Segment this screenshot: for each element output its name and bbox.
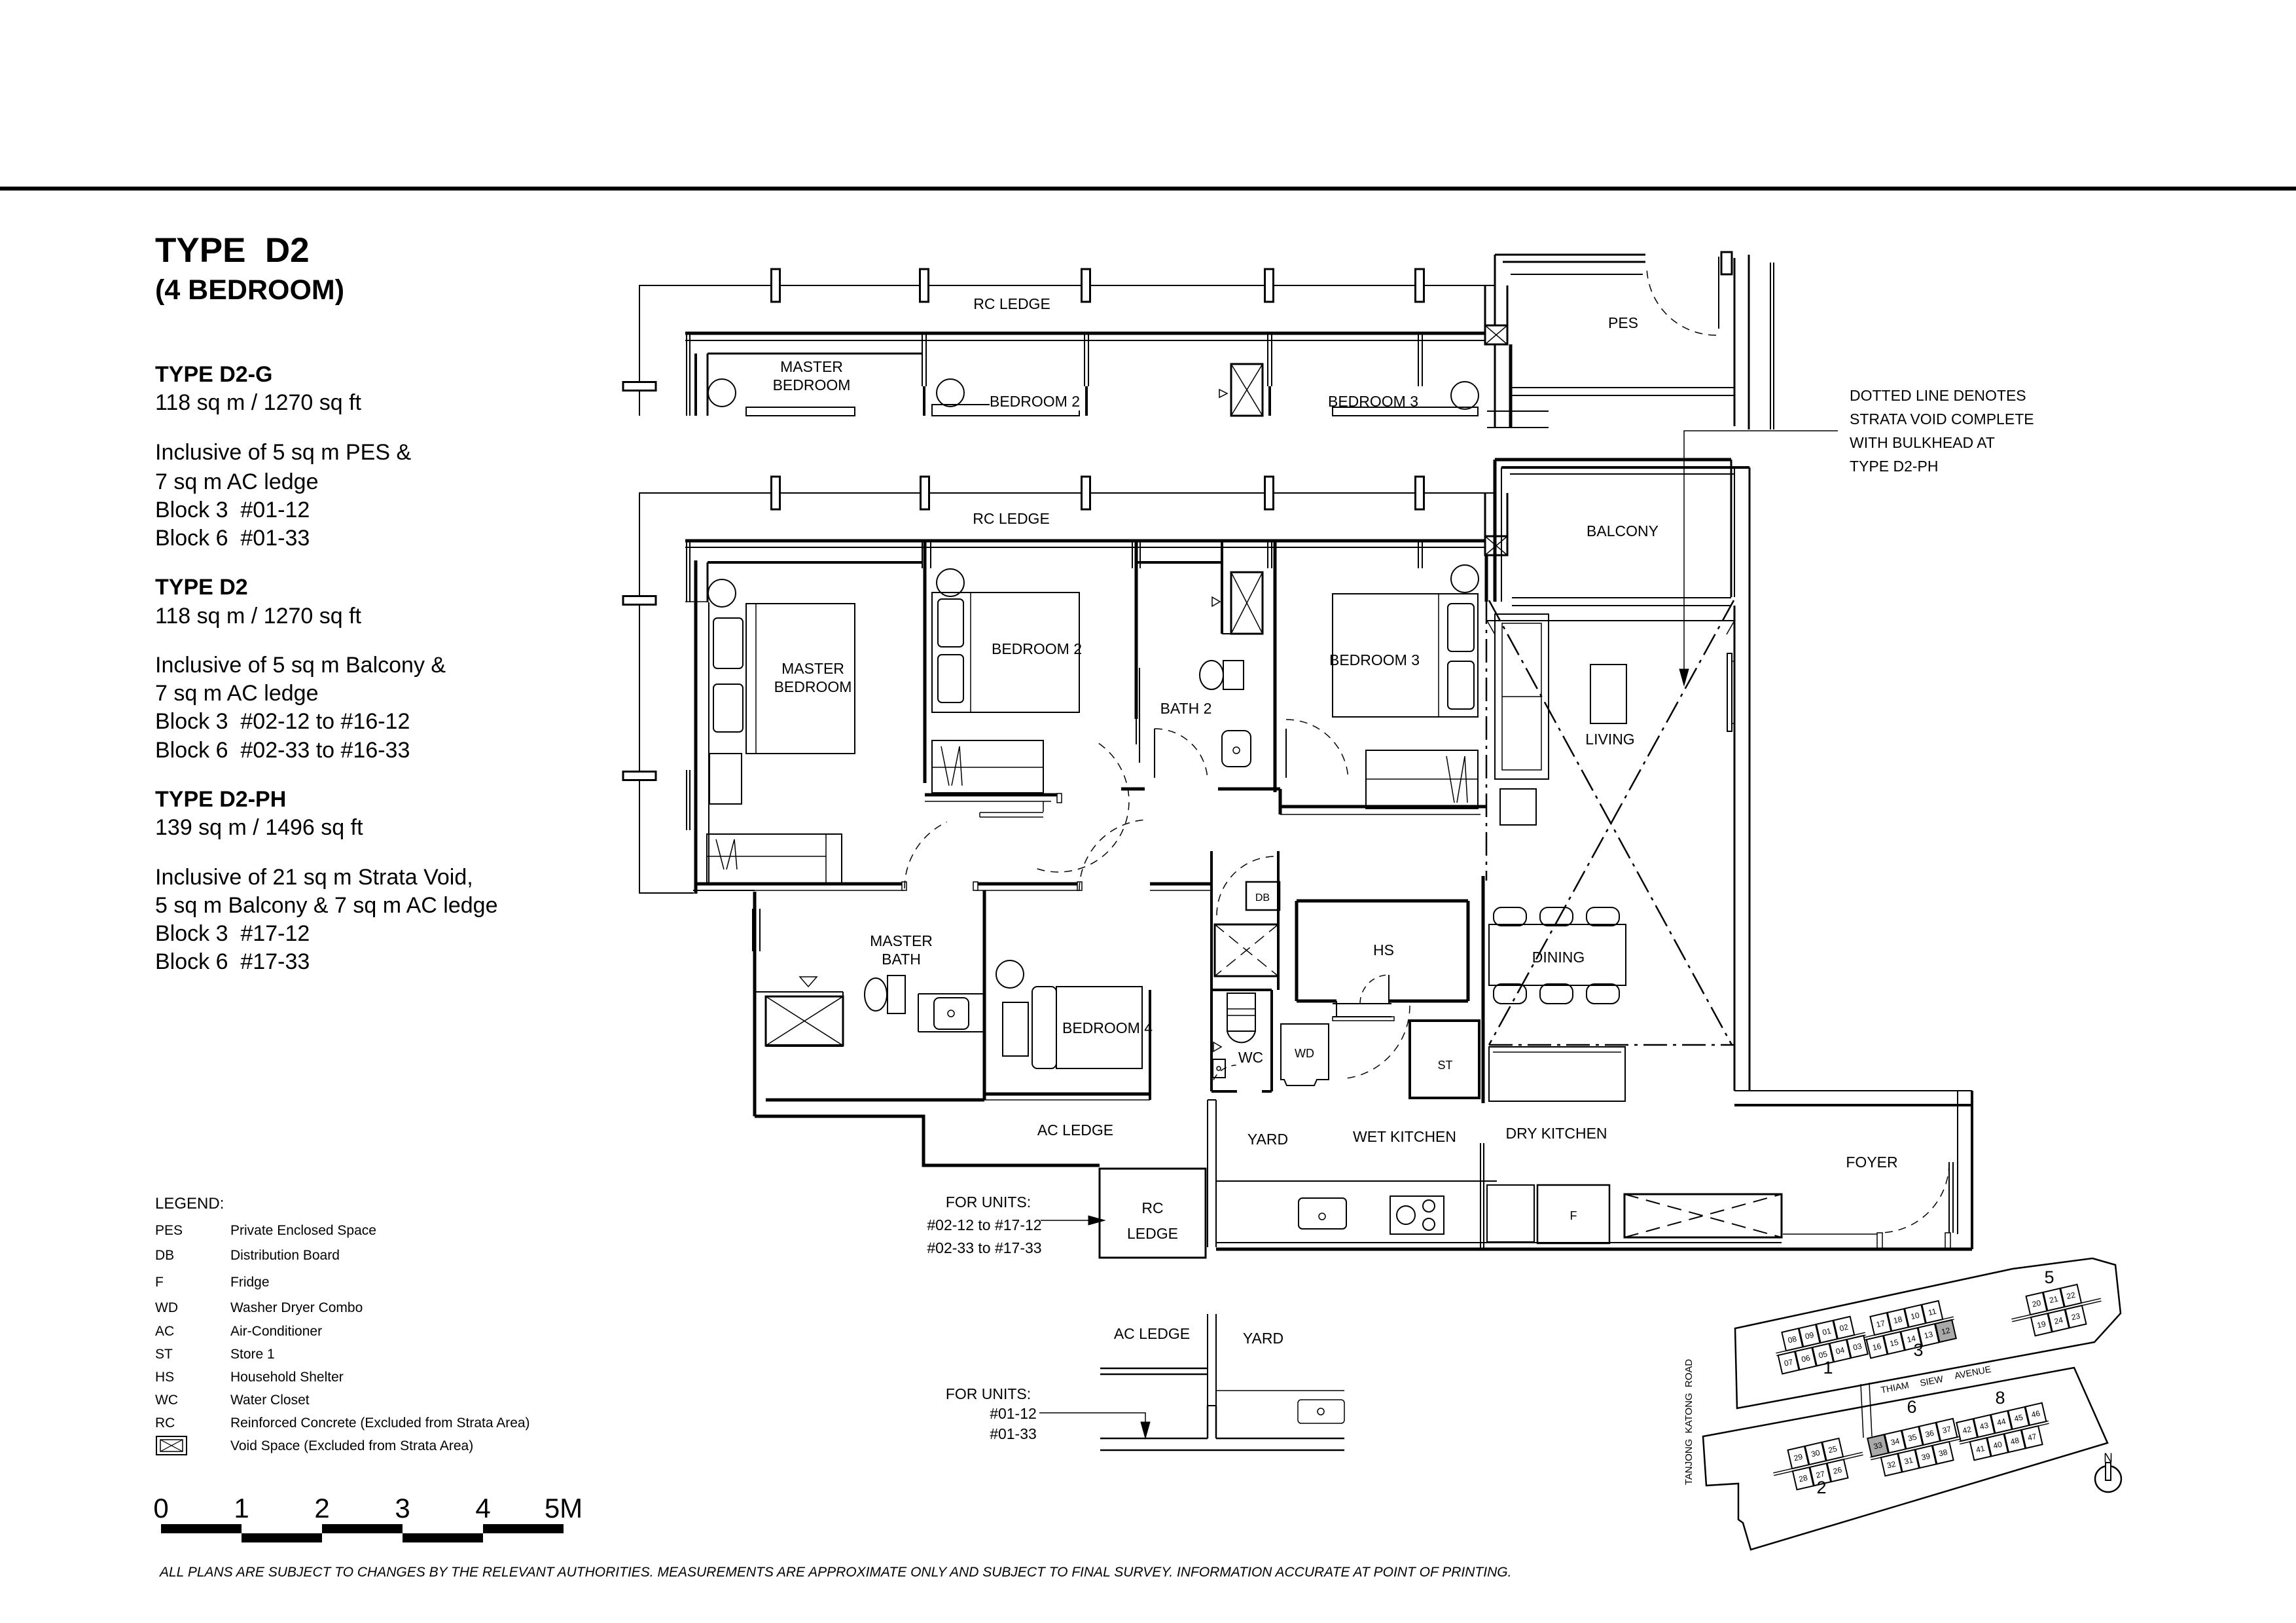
svg-text:BEDROOM: BEDROOM xyxy=(774,678,852,695)
svg-text:5 sq m Balcony & 7 sq m AC led: 5 sq m Balcony & 7 sq m AC ledge xyxy=(155,893,497,918)
svg-text:FOR UNITS:: FOR UNITS: xyxy=(946,1385,1031,1402)
svg-text:BEDROOM 4: BEDROOM 4 xyxy=(1062,1019,1153,1036)
svg-text:HS: HS xyxy=(1373,941,1394,958)
svg-text:Private Enclosed Space: Private Enclosed Space xyxy=(230,1223,376,1238)
svg-text:Washer Dryer Combo: Washer Dryer Combo xyxy=(230,1300,363,1315)
svg-text:0: 0 xyxy=(153,1493,168,1523)
svg-text:Household Shelter: Household Shelter xyxy=(230,1370,344,1385)
svg-text:LEDGE: LEDGE xyxy=(1127,1225,1178,1242)
svg-text:139 sq m / 1496 sq ft: 139 sq m / 1496 sq ft xyxy=(155,815,363,840)
svg-text:TANJONG KATONG ROAD: TANJONG KATONG ROAD xyxy=(1683,1359,1695,1486)
svg-text:7 sq m AC ledge: 7 sq m AC ledge xyxy=(155,469,318,494)
svg-text:DRY KITCHEN: DRY KITCHEN xyxy=(1505,1125,1607,1142)
svg-text:1: 1 xyxy=(234,1493,249,1523)
svg-text:WD: WD xyxy=(1295,1047,1314,1060)
svg-text:DB: DB xyxy=(155,1248,174,1263)
svg-text:DINING: DINING xyxy=(1532,949,1585,966)
svg-text:(4 BEDROOM): (4 BEDROOM) xyxy=(155,274,344,306)
svg-text:MASTER: MASTER xyxy=(780,358,843,375)
svg-text:1: 1 xyxy=(1823,1358,1833,1377)
svg-text:#01-33: #01-33 xyxy=(990,1425,1037,1442)
svg-text:Block 6 #01-33: Block 6 #01-33 xyxy=(155,526,310,551)
svg-text:LEGEND:: LEGEND: xyxy=(155,1195,224,1213)
svg-text:WET KITCHEN: WET KITCHEN xyxy=(1353,1128,1456,1145)
svg-text:ALL PLANS ARE SUBJECT TO CHANG: ALL PLANS ARE SUBJECT TO CHANGES BY THE … xyxy=(158,1565,1511,1580)
svg-text:Block 6 #02-33 to #16-33: Block 6 #02-33 to #16-33 xyxy=(155,738,410,763)
svg-text:TYPE D2-PH: TYPE D2-PH xyxy=(155,787,286,812)
svg-text:ST: ST xyxy=(155,1347,173,1362)
svg-text:Block 6 #17-33: Block 6 #17-33 xyxy=(155,949,310,974)
svg-text:Distribution Board: Distribution Board xyxy=(230,1248,340,1263)
svg-text:AC LEDGE: AC LEDGE xyxy=(1114,1325,1190,1342)
svg-text:4: 4 xyxy=(475,1493,490,1523)
svg-text:Inclusive of 5 sq m Balcony &: Inclusive of 5 sq m Balcony & xyxy=(155,653,446,678)
svg-text:LIVING: LIVING xyxy=(1585,731,1634,748)
svg-text:TYPE D2-PH: TYPE D2-PH xyxy=(1850,458,1938,475)
svg-text:118 sq m / 1270 sq ft: 118 sq m / 1270 sq ft xyxy=(155,390,362,415)
svg-text:Fridge: Fridge xyxy=(230,1275,270,1290)
svg-text:TYPE D2: TYPE D2 xyxy=(155,575,248,600)
svg-text:WC: WC xyxy=(155,1393,178,1408)
svg-text:FOYER: FOYER xyxy=(1846,1154,1897,1171)
svg-text:BEDROOM: BEDROOM xyxy=(773,376,851,393)
svg-text:BATH: BATH xyxy=(882,951,921,968)
svg-text:Block 3 #17-12: Block 3 #17-12 xyxy=(155,921,310,946)
svg-text:2: 2 xyxy=(314,1493,329,1523)
svg-text:STRATA VOID COMPLETE: STRATA VOID COMPLETE xyxy=(1850,410,2034,428)
svg-text:RC: RC xyxy=(155,1415,175,1431)
svg-text:Air-Conditioner: Air-Conditioner xyxy=(230,1324,322,1339)
svg-text:Void Space (Excluded from Stra: Void Space (Excluded from Strata Area) xyxy=(230,1438,473,1453)
svg-text:MASTER: MASTER xyxy=(781,660,844,677)
svg-text:F: F xyxy=(1570,1209,1577,1222)
svg-text:Inclusive of 5 sq m PES &: Inclusive of 5 sq m PES & xyxy=(155,440,411,465)
svg-text:AC LEDGE: AC LEDGE xyxy=(1037,1122,1113,1139)
svg-text:YARD: YARD xyxy=(1247,1131,1288,1148)
svg-text:FOR UNITS:: FOR UNITS: xyxy=(946,1194,1031,1211)
svg-text:DOTTED LINE DENOTES: DOTTED LINE DENOTES xyxy=(1850,387,2026,404)
svg-text:Water Closet: Water Closet xyxy=(230,1393,310,1408)
svg-text:RC: RC xyxy=(1141,1199,1163,1216)
svg-text:118 sq m / 1270 sq ft: 118 sq m / 1270 sq ft xyxy=(155,604,362,629)
svg-text:PES: PES xyxy=(155,1223,183,1238)
svg-text:3: 3 xyxy=(1913,1340,1923,1360)
svg-text:TYPE D2-G: TYPE D2-G xyxy=(155,362,272,387)
svg-text:#02-12 to #17-12: #02-12 to #17-12 xyxy=(927,1216,1041,1233)
svg-text:TYPE D2: TYPE D2 xyxy=(155,231,310,270)
svg-text:MASTER: MASTER xyxy=(870,932,933,949)
svg-text:2: 2 xyxy=(1816,1478,1826,1497)
svg-text:DB: DB xyxy=(1255,892,1270,903)
svg-text:3: 3 xyxy=(395,1493,410,1523)
svg-text:Block 3 #02-12 to #16-12: Block 3 #02-12 to #16-12 xyxy=(155,709,410,734)
svg-text:BATH 2: BATH 2 xyxy=(1160,700,1212,717)
svg-text:6: 6 xyxy=(1907,1397,1916,1417)
svg-text:Reinforced Concrete (Excluded: Reinforced Concrete (Excluded from Strat… xyxy=(230,1415,530,1431)
svg-text:WC: WC xyxy=(1238,1049,1263,1066)
svg-text:8: 8 xyxy=(1995,1388,2005,1408)
svg-text:Inclusive of 21 sq m Strata Vo: Inclusive of 21 sq m Strata Void, xyxy=(155,865,473,890)
svg-text:F: F xyxy=(155,1275,164,1290)
svg-text:WD: WD xyxy=(155,1300,178,1315)
svg-text:YARD: YARD xyxy=(1243,1330,1283,1347)
svg-text:RC LEDGE: RC LEDGE xyxy=(973,295,1050,312)
svg-text:AC: AC xyxy=(155,1324,174,1339)
svg-text:Store 1: Store 1 xyxy=(230,1347,275,1362)
svg-text:ST: ST xyxy=(1437,1059,1452,1072)
svg-text:BEDROOM 2: BEDROOM 2 xyxy=(992,640,1082,657)
svg-text:N: N xyxy=(2104,1451,2113,1465)
svg-text:BALCONY: BALCONY xyxy=(1587,522,1659,539)
svg-text:#01-12: #01-12 xyxy=(990,1405,1037,1422)
svg-text:5M: 5M xyxy=(545,1493,583,1523)
svg-text:BEDROOM 2: BEDROOM 2 xyxy=(990,393,1080,410)
svg-text:Block 3 #01-12: Block 3 #01-12 xyxy=(155,498,310,522)
svg-text:WITH BULKHEAD AT: WITH BULKHEAD AT xyxy=(1850,434,1995,451)
svg-text:#02-33 to #17-33: #02-33 to #17-33 xyxy=(927,1239,1041,1256)
svg-text:RC LEDGE: RC LEDGE xyxy=(973,510,1050,527)
svg-text:PES: PES xyxy=(1608,314,1638,331)
svg-text:7 sq m AC ledge: 7 sq m AC ledge xyxy=(155,681,318,706)
svg-text:BEDROOM 3: BEDROOM 3 xyxy=(1329,651,1420,668)
svg-text:5: 5 xyxy=(2044,1267,2054,1287)
svg-text:HS: HS xyxy=(155,1370,174,1385)
